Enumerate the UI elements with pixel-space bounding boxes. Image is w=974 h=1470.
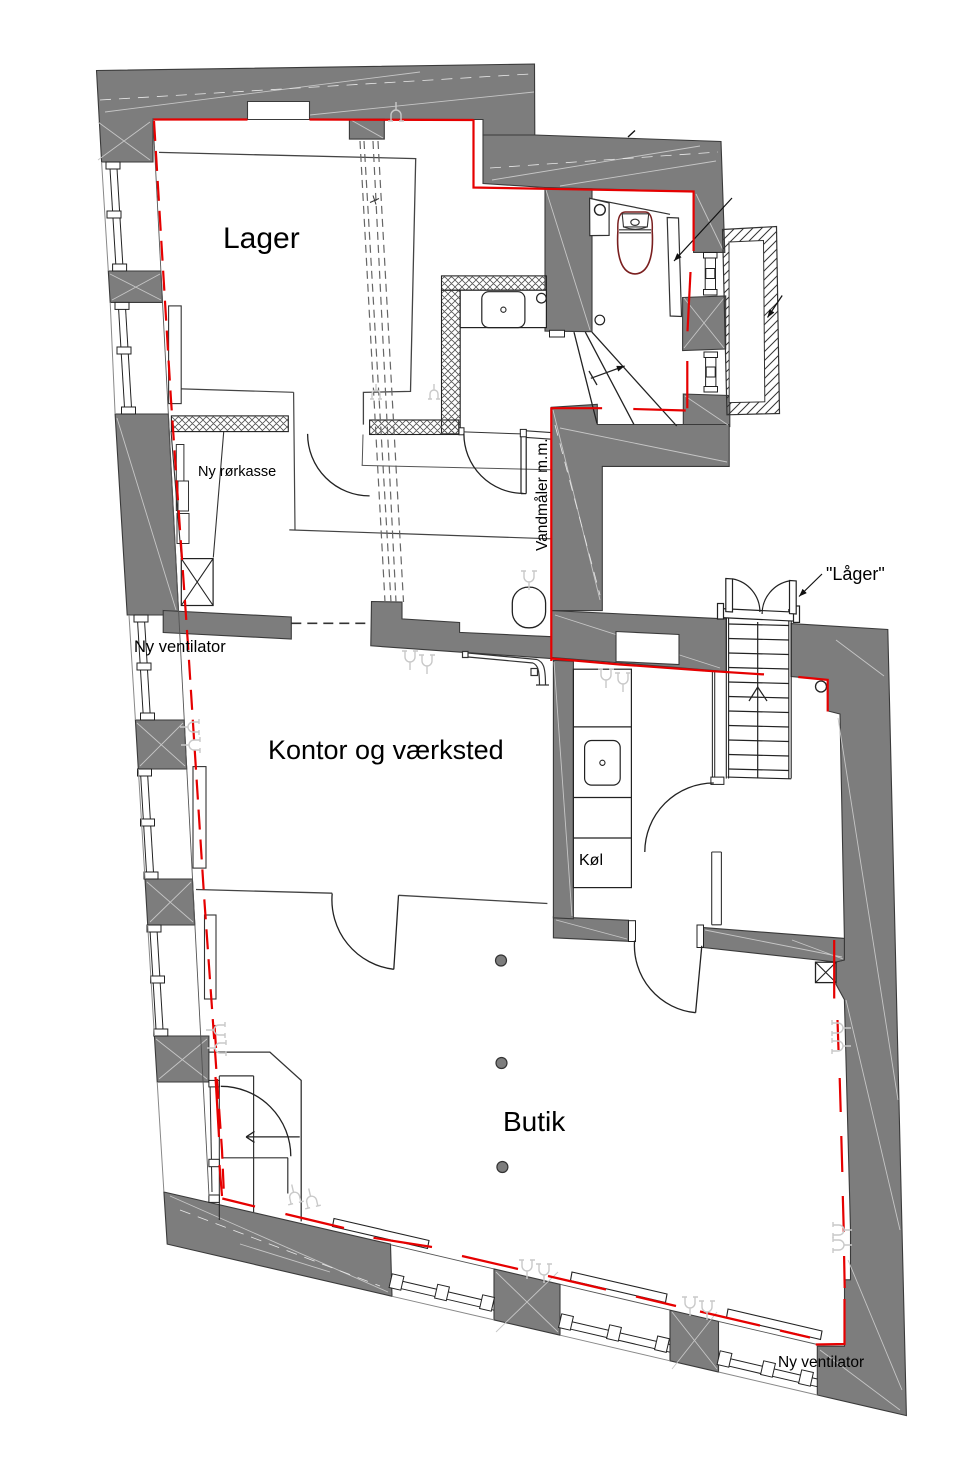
svg-text:Lager: Lager xyxy=(223,222,300,255)
svg-text:Ny ventilator: Ny ventilator xyxy=(778,1354,864,1371)
svg-text:Kontor og værksted: Kontor og værksted xyxy=(268,735,504,765)
svg-text:Køl: Køl xyxy=(579,852,603,869)
svg-text:Vandmåler m.m.: Vandmåler m.m. xyxy=(534,438,551,551)
svg-text:Butik: Butik xyxy=(503,1106,566,1137)
svg-text:"Låger": "Låger" xyxy=(826,564,885,584)
svg-text:Ny rørkasse: Ny rørkasse xyxy=(198,464,276,480)
svg-text:Ny ventilator: Ny ventilator xyxy=(134,638,226,656)
